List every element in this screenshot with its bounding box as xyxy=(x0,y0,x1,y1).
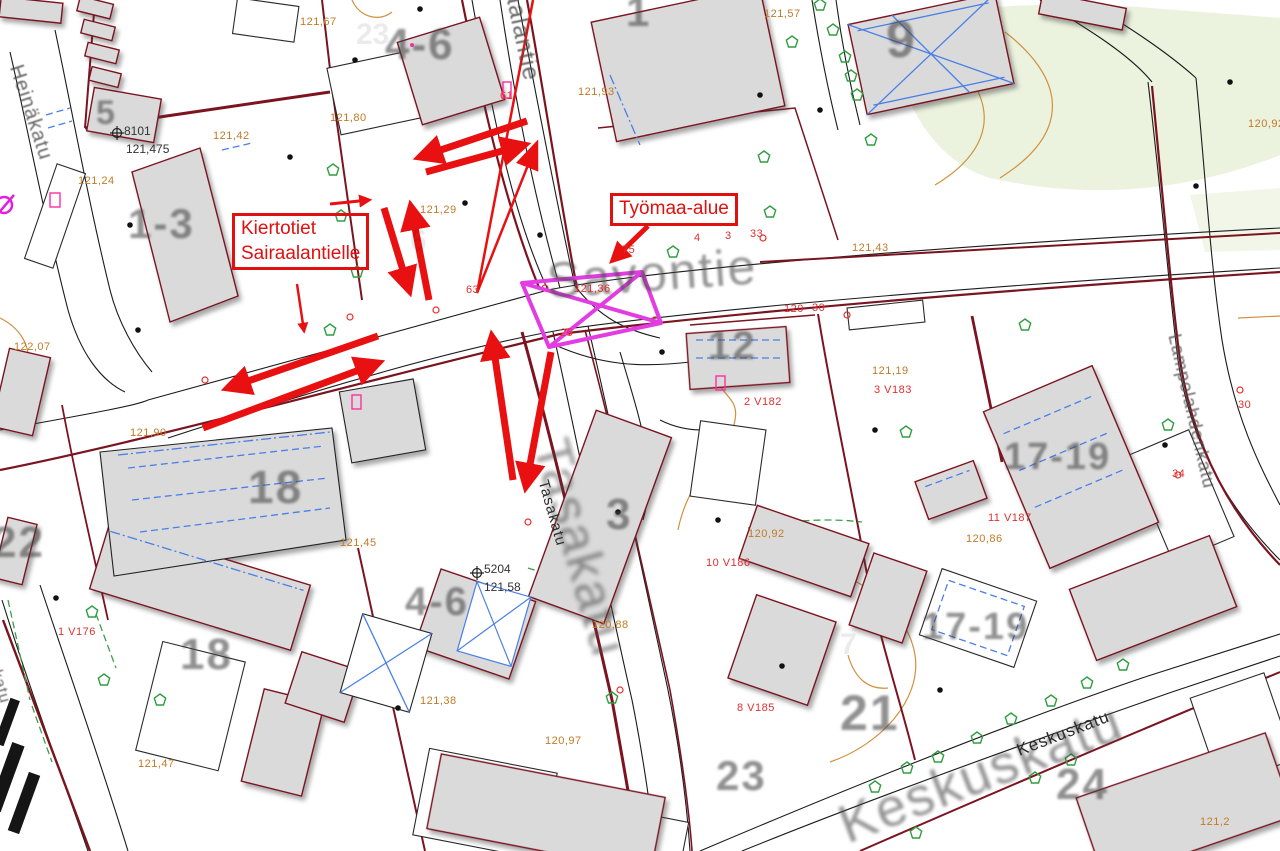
tree-icon xyxy=(971,732,982,743)
tree-icon xyxy=(1162,419,1173,430)
tree-icon xyxy=(98,674,109,685)
base-map xyxy=(0,0,1280,851)
tree-icon xyxy=(758,151,769,162)
work-area-label: Työmaa-alue xyxy=(619,197,729,222)
tree-icon xyxy=(1045,695,1056,706)
tree-icon xyxy=(86,606,97,617)
tree-icon xyxy=(865,134,876,145)
tree-icon xyxy=(327,164,338,175)
tree-icon xyxy=(1005,713,1016,724)
tree-icon xyxy=(827,24,838,35)
tree-icon xyxy=(1019,319,1030,330)
detour-note-box: Kiertotiet Sairaalantielle xyxy=(232,213,369,270)
tree-icon xyxy=(869,781,880,792)
tree-icon xyxy=(845,70,856,81)
tree-icon xyxy=(1081,677,1092,688)
tree-icon xyxy=(932,751,943,762)
tree-icon xyxy=(764,206,775,217)
tree-icon xyxy=(900,426,911,437)
detour-note-line1: Kiertotiet xyxy=(241,217,360,242)
black-structures xyxy=(0,698,40,834)
tree-icon xyxy=(667,246,678,257)
tree-icon xyxy=(324,324,335,335)
map-canvas: Savontie Sairaalantie Heinäkatu Tasakatu… xyxy=(0,0,1280,851)
detour-note-line2: Sairaalantielle xyxy=(241,242,360,267)
tree-icon xyxy=(1117,659,1128,670)
tree-icon xyxy=(786,36,797,47)
tree-icon xyxy=(814,0,825,10)
work-area-note-box: Työmaa-alue xyxy=(610,193,738,226)
